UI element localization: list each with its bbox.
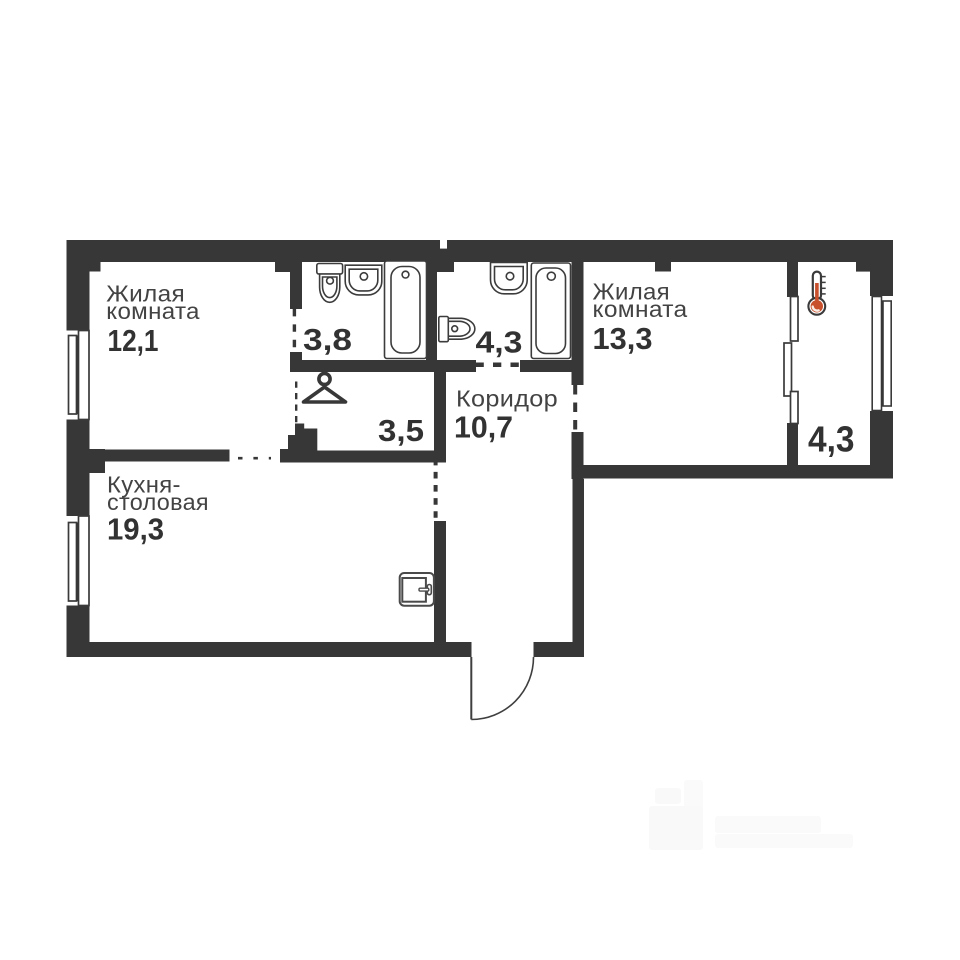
svg-text:19,3: 19,3 [107,512,164,547]
svg-text:4,3: 4,3 [476,325,523,360]
svg-text:Коридор: Коридор [456,385,558,411]
svg-text:10,7: 10,7 [454,410,513,445]
svg-text:3,5: 3,5 [378,413,424,448]
svg-text:комната: комната [106,298,200,324]
svg-text:комната: комната [593,296,688,322]
svg-text:4,3: 4,3 [808,419,855,460]
svg-text:12,1: 12,1 [108,323,159,358]
svg-text:13,3: 13,3 [593,321,653,356]
svg-text:3,8: 3,8 [303,322,352,357]
